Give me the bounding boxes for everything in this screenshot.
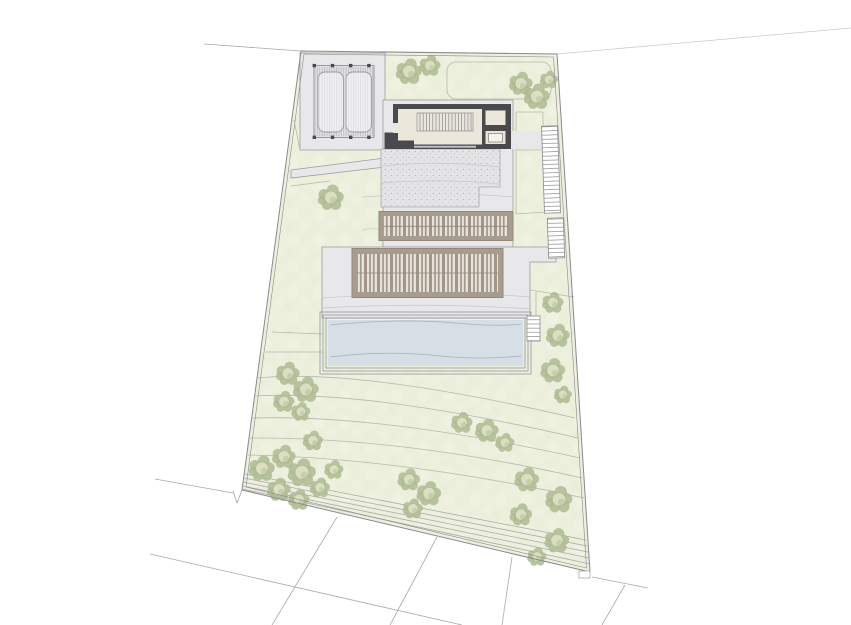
house-wall-stub [385, 133, 394, 150]
parcel-corner-marker [579, 571, 590, 578]
skylight [489, 134, 503, 143]
parking-bay-left [318, 72, 344, 132]
boundary-notch [233, 490, 242, 503]
access-road-lines [204, 28, 851, 54]
carport-canopy [313, 64, 374, 139]
house-wall-tab [396, 141, 414, 150]
site-plan-drawing [0, 0, 851, 625]
house-wall-west-upper [393, 104, 398, 123]
stair-landing-path [511, 131, 544, 149]
pool-water [328, 320, 523, 366]
pergola-upper [379, 212, 513, 241]
house [385, 104, 512, 149]
stair-flight-pool [527, 316, 540, 341]
pergola-lower [352, 249, 503, 298]
site-plan-canvas [0, 0, 851, 625]
stair-flight-upper [541, 126, 560, 214]
swimming-pool [320, 312, 531, 374]
service-rooms [482, 107, 509, 147]
stair-flight-middle [547, 218, 564, 259]
parking-bay-right [346, 72, 372, 132]
